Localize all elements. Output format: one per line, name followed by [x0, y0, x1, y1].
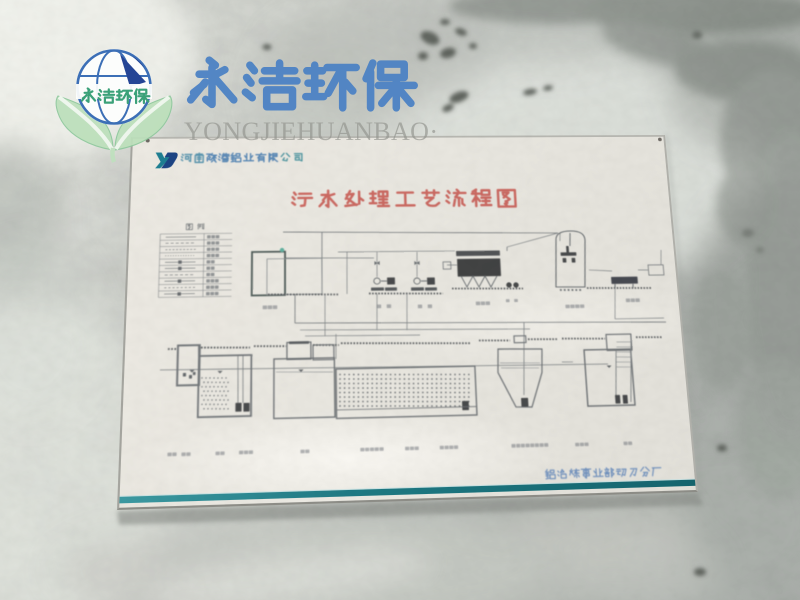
svg-text:YONGJIEHUANBAO·: YONGJIEHUANBAO·	[184, 117, 438, 146]
